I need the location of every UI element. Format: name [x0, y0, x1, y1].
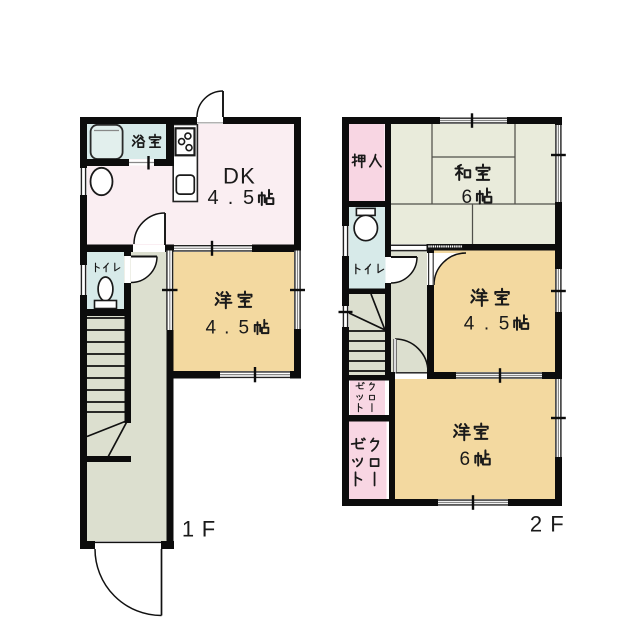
svg-text:K: K	[240, 164, 255, 189]
svg-text:F: F	[550, 512, 563, 537]
svg-text:5: 5	[243, 187, 254, 209]
svg-text:1: 1	[182, 517, 194, 542]
svg-text:D: D	[223, 164, 239, 189]
svg-text:.: .	[484, 314, 489, 335]
svg-text:2: 2	[530, 512, 542, 537]
svg-text:4: 4	[464, 314, 475, 335]
svg-text:.: .	[228, 187, 234, 209]
svg-text:4: 4	[207, 187, 218, 209]
svg-text:6: 6	[460, 449, 471, 470]
svg-text:6: 6	[462, 187, 473, 208]
svg-text:4: 4	[206, 318, 217, 339]
svg-text:5: 5	[239, 318, 250, 339]
svg-text:5: 5	[499, 314, 510, 335]
svg-text:.: .	[224, 318, 229, 339]
svg-text:F: F	[202, 517, 215, 542]
